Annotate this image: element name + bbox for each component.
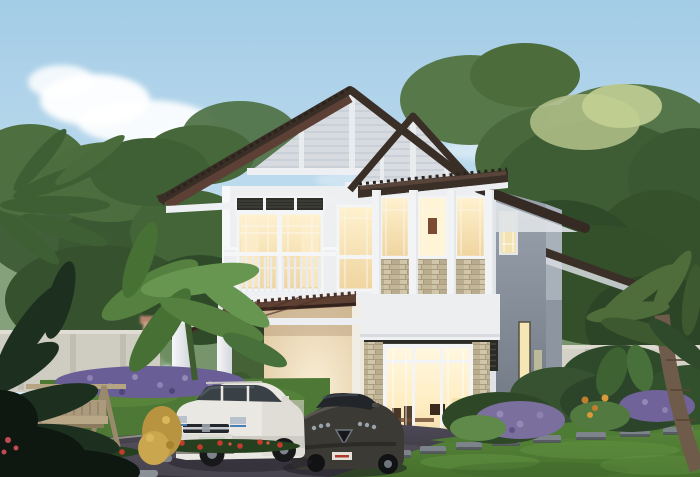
interfloor-band xyxy=(336,294,500,340)
middle-window xyxy=(338,206,374,290)
house-rendering xyxy=(0,0,700,477)
